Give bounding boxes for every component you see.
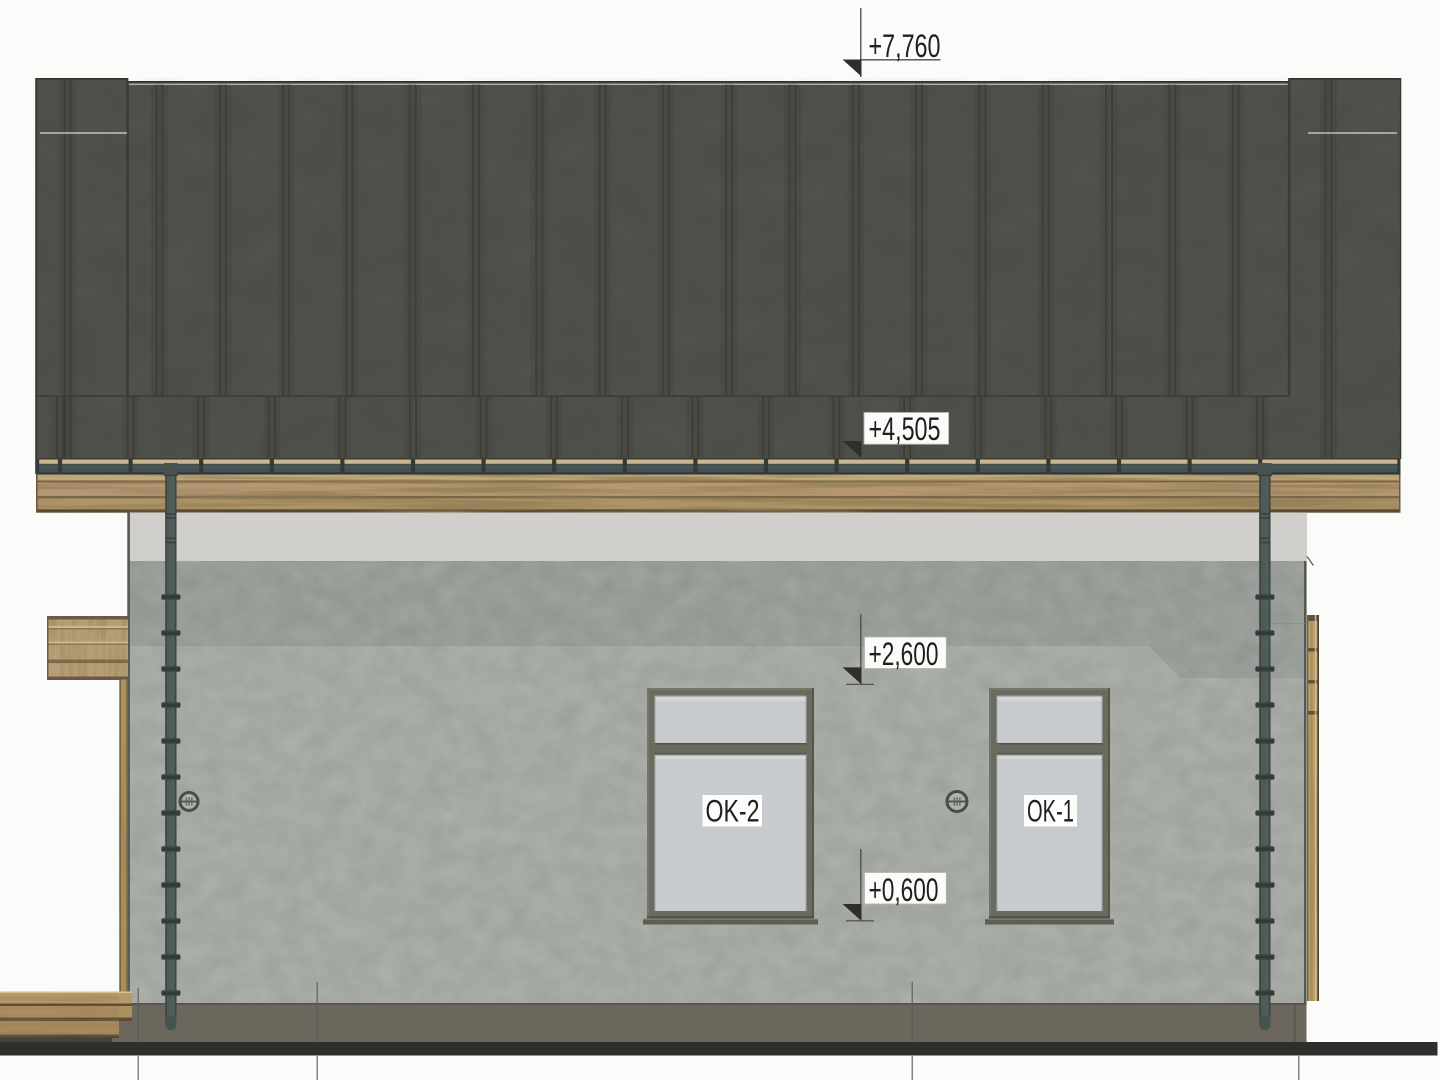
svg-text:OK-2: OK-2 xyxy=(706,793,760,829)
svg-text:+2,600: +2,600 xyxy=(869,636,939,672)
svg-text:+7,760: +7,760 xyxy=(869,28,941,64)
svg-text:OK-1: OK-1 xyxy=(1027,793,1074,829)
svg-text:+0,600: +0,600 xyxy=(869,872,939,908)
svg-text:+4,505: +4,505 xyxy=(869,411,941,447)
